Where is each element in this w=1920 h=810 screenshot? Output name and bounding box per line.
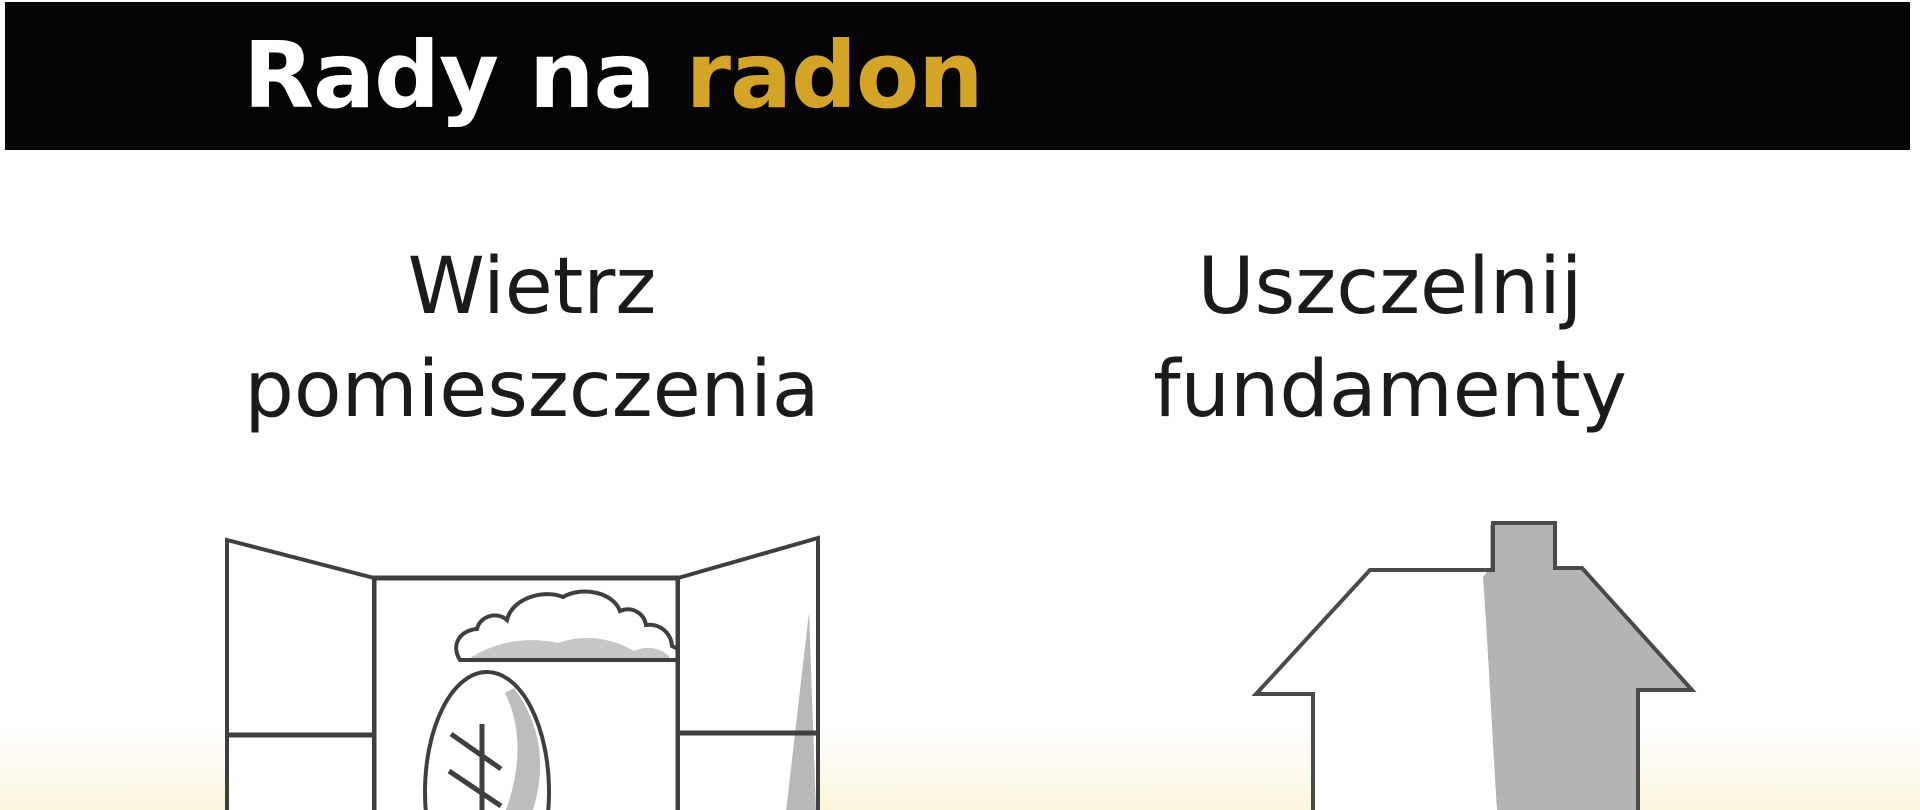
caption-line: Uszczelnij <box>930 236 1850 339</box>
caption-line: Wietrz <box>72 236 992 339</box>
house-shadow-and-chimney <box>1483 525 1689 810</box>
caption-seal-foundations: Uszczelnij fundamenty <box>930 236 1850 442</box>
window-left-sash <box>227 540 374 810</box>
open-window-icon <box>200 518 844 810</box>
header-bar: Rady na radon <box>5 2 1910 150</box>
infographic-slide: Rady na radon Wietrz pomieszczenia Uszcz… <box>0 0 1920 810</box>
caption-ventilate-rooms: Wietrz pomieszczenia <box>72 236 992 442</box>
title-text-white: Rady na <box>243 22 685 129</box>
page-title: Rady na radon <box>57 0 983 214</box>
house-icon <box>1238 503 1712 810</box>
caption-line: pomieszczenia <box>72 339 992 442</box>
title-text-accent: radon <box>686 22 983 129</box>
caption-line: fundamenty <box>930 339 1850 442</box>
